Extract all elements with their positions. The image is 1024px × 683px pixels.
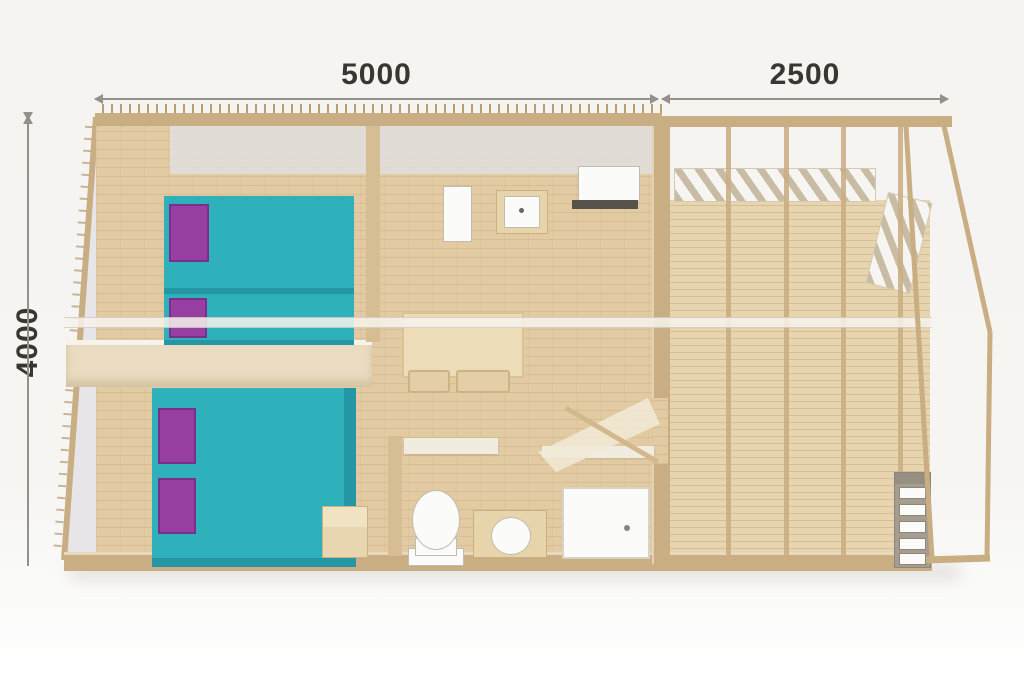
dimension-label-2500: 2500 [662,58,948,92]
dimension-line [27,116,29,566]
floor-plan-image: 5000 2500 4000 [0,0,1024,683]
arrow-right-icon [650,94,659,104]
dimension-label-5000: 5000 [95,58,658,92]
frame-brace-icon [944,126,990,332]
dimension-line [95,98,658,100]
frame-post [906,126,932,558]
arrow-left-icon [661,94,670,104]
dimension-main-width: 5000 [95,58,658,100]
arrow-right-icon [940,94,949,104]
rug-icon [538,398,660,472]
arrow-left-icon [94,94,103,104]
dimension-line [662,98,948,100]
dimension-deck-width: 2500 [662,58,948,100]
arrow-down-icon [23,112,33,121]
frame-post-outer [987,332,990,558]
dimension-depth: 4000 [0,116,56,566]
frame-overlay-svg [0,0,1024,683]
frame-base-beam [926,558,990,560]
